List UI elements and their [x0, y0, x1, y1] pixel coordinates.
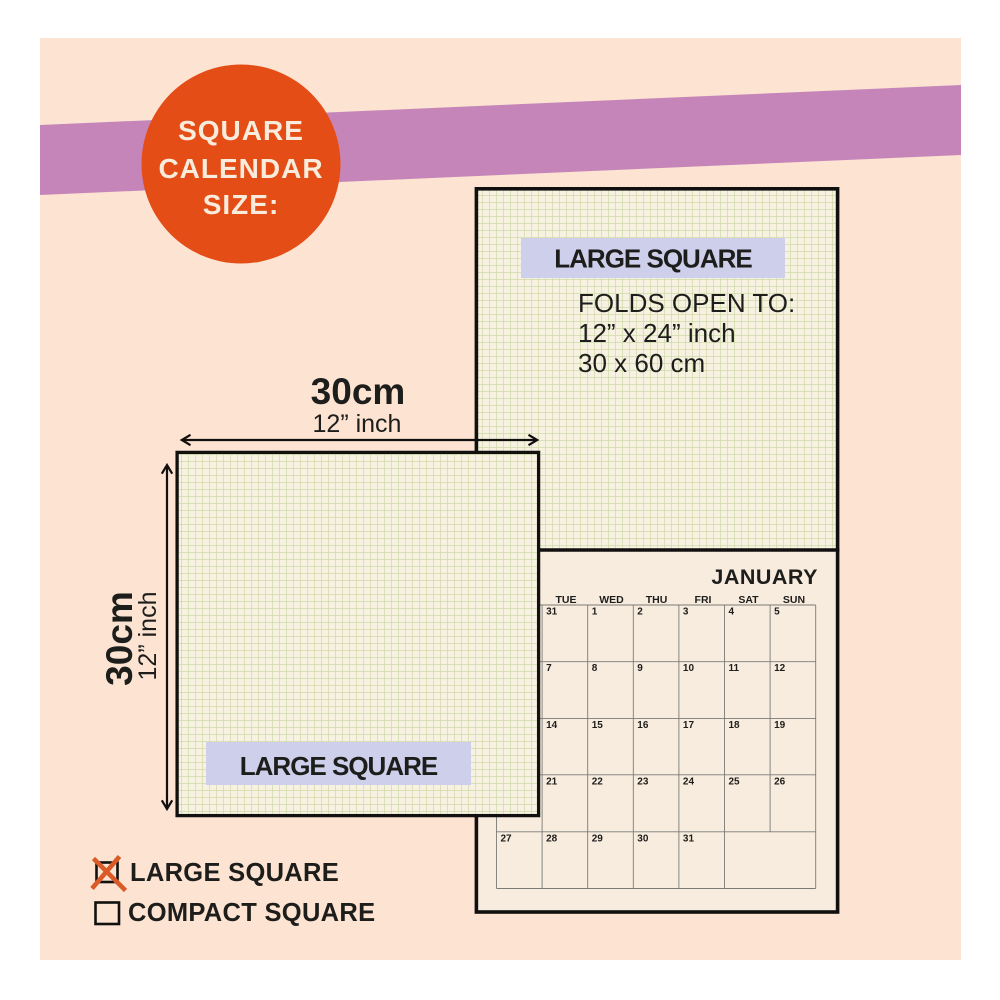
svg-text:12: 12 [774, 663, 786, 674]
svg-text:CALENDAR: CALENDAR [158, 153, 323, 184]
svg-text:31: 31 [683, 833, 695, 844]
svg-text:19: 19 [774, 720, 786, 731]
svg-text:27: 27 [501, 833, 513, 844]
svg-text:15: 15 [592, 720, 604, 731]
svg-text:11: 11 [729, 663, 740, 674]
svg-text:10: 10 [683, 663, 695, 674]
svg-text:LARGE SQUARE: LARGE SQUARE [240, 751, 438, 781]
svg-text:30: 30 [637, 833, 649, 844]
svg-text:18: 18 [729, 720, 741, 731]
svg-text:17: 17 [683, 720, 695, 731]
svg-text:LARGE SQUARE: LARGE SQUARE [130, 859, 339, 887]
svg-text:28: 28 [546, 833, 558, 844]
svg-text:30 x 60 cm: 30 x 60 cm [578, 348, 705, 378]
svg-text:FOLDS OPEN TO:: FOLDS OPEN TO: [578, 288, 795, 318]
svg-text:THU: THU [646, 594, 668, 606]
svg-text:16: 16 [637, 720, 649, 731]
svg-text:22: 22 [592, 777, 604, 788]
svg-text:2: 2 [637, 607, 643, 618]
svg-text:FRI: FRI [695, 594, 712, 606]
svg-text:WED: WED [599, 594, 624, 606]
svg-text:25: 25 [729, 777, 741, 788]
svg-text:12” inch: 12” inch [313, 410, 402, 438]
svg-text:COMPACT SQUARE: COMPACT SQUARE [128, 899, 375, 927]
svg-text:23: 23 [637, 777, 649, 788]
svg-text:9: 9 [637, 663, 643, 674]
svg-text:SQUARE: SQUARE [178, 115, 304, 146]
svg-text:8: 8 [592, 663, 598, 674]
svg-text:14: 14 [546, 720, 558, 731]
svg-text:31: 31 [546, 607, 558, 618]
svg-text:SAT: SAT [738, 594, 759, 606]
svg-text:1: 1 [592, 607, 598, 618]
svg-text:12” x 24” inch: 12” x 24” inch [578, 318, 736, 348]
svg-text:30cm: 30cm [311, 371, 406, 412]
svg-text:JANUARY: JANUARY [711, 565, 818, 589]
svg-text:4: 4 [729, 607, 735, 618]
svg-text:7: 7 [546, 663, 552, 674]
svg-text:24: 24 [683, 777, 695, 788]
svg-text:3: 3 [683, 607, 689, 618]
svg-text:26: 26 [774, 777, 786, 788]
svg-text:LARGE SQUARE: LARGE SQUARE [554, 244, 752, 274]
svg-text:SIZE:: SIZE: [203, 189, 280, 220]
svg-text:29: 29 [592, 833, 604, 844]
svg-text:SUN: SUN [783, 594, 805, 606]
svg-text:12” inch: 12” inch [134, 592, 162, 681]
svg-text:5: 5 [774, 607, 780, 618]
svg-text:21: 21 [546, 777, 558, 788]
svg-text:TUE: TUE [556, 594, 577, 606]
